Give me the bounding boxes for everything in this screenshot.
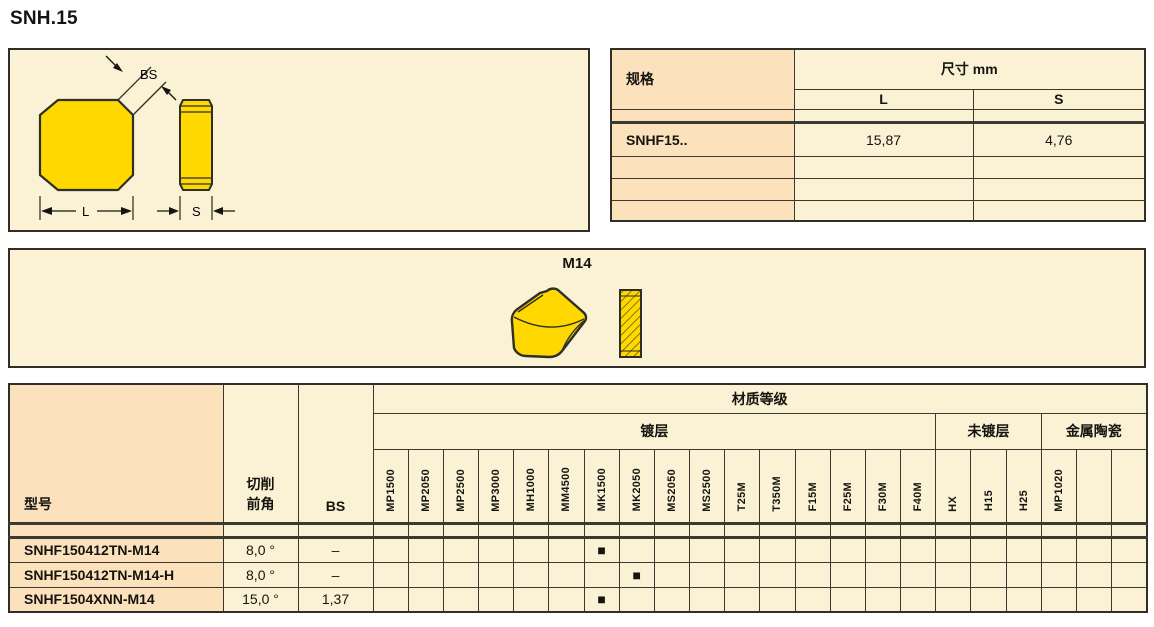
insert-drawing: BS L S <box>10 50 588 230</box>
grade-mark-cell <box>1006 587 1041 612</box>
grade-mark-cell <box>795 523 830 537</box>
grade-mark-cell <box>514 587 549 612</box>
table-row <box>611 178 1145 200</box>
model-cell: SNHF150412TN-M14 <box>9 537 223 562</box>
rake-angle-line2: 前角 <box>224 494 298 514</box>
grade-mark-cell <box>795 562 830 587</box>
spec-cell: SNHF15.. <box>611 122 794 156</box>
grade-column-header: HX <box>936 449 971 523</box>
chipbreaker-drawing <box>10 250 1144 366</box>
grade-column-label: F40M <box>912 482 924 511</box>
grade-mark-cell <box>443 523 478 537</box>
spec-cell <box>611 200 794 221</box>
bs-column-header: BS <box>298 384 373 523</box>
grade-column-header: H25 <box>1006 449 1041 523</box>
grade-mark-cell <box>619 523 654 537</box>
grade-mark-cell <box>408 537 443 562</box>
grade-column-header: F15M <box>795 449 830 523</box>
rake-angle-cell: 15,0 ° <box>223 587 298 612</box>
grade-column-header: H15 <box>971 449 1006 523</box>
grade-mark-cell <box>690 523 725 537</box>
grade-column-header: MP3000 <box>479 449 514 523</box>
table-row: SNHF15.. 15,87 4,76 <box>611 122 1145 156</box>
grade-column-header: MS2050 <box>654 449 689 523</box>
grade-column-label: MP2050 <box>420 469 432 512</box>
dimension-mm-header: 尺寸 mm <box>794 49 1145 89</box>
grade-mark-cell <box>654 523 689 537</box>
grade-column-label: F25M <box>842 482 854 511</box>
grade-column-label: MS2050 <box>666 469 678 512</box>
grade-mark-cell <box>936 523 971 537</box>
rake-angle-line1: 切削 <box>224 474 298 494</box>
grade-column-label: HX <box>947 496 959 512</box>
table-row: SNHF150412TN-M148,0 °–■ <box>9 537 1147 562</box>
grade-mark-cell: ■ <box>584 537 619 562</box>
model-cell <box>9 523 223 537</box>
grade-mark-cell <box>549 523 584 537</box>
grade-mark-cell <box>865 537 900 562</box>
grade-column-label: T350M <box>771 476 783 512</box>
grade-mark-cell: ■ <box>619 562 654 587</box>
grade-mark-cell <box>1076 537 1111 562</box>
rake-angle-cell: 8,0 ° <box>223 562 298 587</box>
col-header-S: S <box>973 89 1145 109</box>
subgroup-header-0: 镀层 <box>373 413 936 449</box>
grade-mark-cell <box>443 562 478 587</box>
table-row <box>611 109 1145 122</box>
grade-mark-cell <box>1076 587 1111 612</box>
grade-mark-cell <box>1076 562 1111 587</box>
grade-mark-cell <box>936 587 971 612</box>
grade-mark-cell <box>408 562 443 587</box>
rake-angle-cell: 8,0 ° <box>223 537 298 562</box>
grade-mark-cell <box>865 587 900 612</box>
grade-column-header: MP1020 <box>1041 449 1076 523</box>
grade-mark-cell <box>654 562 689 587</box>
grade-column-label: F15M <box>807 482 819 511</box>
grade-column-header <box>1112 449 1147 523</box>
grade-column-label: H25 <box>1018 490 1030 511</box>
grade-mark-cell <box>830 523 865 537</box>
model-column-header: 型号 <box>9 384 223 523</box>
grade-mark-cell <box>1006 537 1041 562</box>
grade-mark-cell <box>760 587 795 612</box>
bs-cell: – <box>298 537 373 562</box>
grade-mark-cell <box>549 562 584 587</box>
grade-mark-cell <box>795 587 830 612</box>
grade-mark-cell <box>479 523 514 537</box>
grade-mark-cell <box>795 537 830 562</box>
chipbreaker-panel: M14 <box>8 248 1146 368</box>
grade-column-header: MS2500 <box>690 449 725 523</box>
grade-column-label: MK1500 <box>596 468 608 511</box>
grade-mark-cell <box>971 537 1006 562</box>
grades-table: 型号切削前角BS材质等级镀层未镀层金属陶瓷MP1500MP2050MP2500M… <box>8 383 1148 613</box>
grade-column-label: MP3000 <box>490 469 502 512</box>
bs-cell: – <box>298 562 373 587</box>
grade-mark-cell <box>901 523 936 537</box>
material-grade-group-header: 材质等级 <box>373 384 1147 413</box>
table-row <box>611 156 1145 178</box>
grade-mark-cell <box>443 587 478 612</box>
grade-mark-cell <box>936 562 971 587</box>
s-cell <box>973 200 1145 221</box>
s-cell <box>973 156 1145 178</box>
grade-mark-cell <box>901 537 936 562</box>
grade-mark-cell <box>549 537 584 562</box>
l-cell <box>794 109 973 122</box>
spec-cell <box>611 156 794 178</box>
grade-mark-cell <box>760 537 795 562</box>
grade-column-label: MH1000 <box>525 468 537 511</box>
grade-mark-cell: ■ <box>584 587 619 612</box>
grade-mark-cell <box>901 587 936 612</box>
grade-mark-cell <box>865 562 900 587</box>
grade-mark-cell <box>760 523 795 537</box>
grade-mark-cell <box>549 587 584 612</box>
col-header-L: L <box>794 89 973 109</box>
s-cell <box>973 109 1145 122</box>
s-cell: 4,76 <box>973 122 1145 156</box>
grade-mark-cell <box>619 537 654 562</box>
grade-mark-cell <box>373 523 408 537</box>
grade-mark-cell <box>901 562 936 587</box>
table-row <box>611 200 1145 221</box>
rake-angle-cell <box>223 523 298 537</box>
grade-mark-cell <box>725 587 760 612</box>
subgroup-header-1: 未镀层 <box>936 413 1042 449</box>
bs-dim-label: BS <box>140 67 158 82</box>
grade-mark-cell <box>760 562 795 587</box>
grade-column-header: MH1000 <box>514 449 549 523</box>
grade-mark-cell <box>865 523 900 537</box>
grade-column-header: F40M <box>901 449 936 523</box>
grade-mark-cell <box>584 523 619 537</box>
page-title: SNH.15 <box>10 8 78 30</box>
grade-mark-cell <box>373 562 408 587</box>
model-cell: SNHF150412TN-M14-H <box>9 562 223 587</box>
grade-mark-cell <box>514 562 549 587</box>
grade-mark-cell <box>830 587 865 612</box>
grade-mark-cell <box>373 587 408 612</box>
s-dim-label: S <box>192 204 201 219</box>
grade-mark-cell <box>690 537 725 562</box>
grade-mark-cell <box>1041 537 1076 562</box>
grade-mark-cell <box>690 562 725 587</box>
grade-column-label: F30M <box>877 482 889 511</box>
grade-mark-cell <box>408 587 443 612</box>
insert-side-section <box>620 290 641 357</box>
grade-mark-cell <box>1076 523 1111 537</box>
grade-column-header: F25M <box>830 449 865 523</box>
grade-mark-cell <box>619 587 654 612</box>
table-row <box>9 523 1147 537</box>
model-cell: SNHF1504XNN-M14 <box>9 587 223 612</box>
grade-column-header: T25M <box>725 449 760 523</box>
grade-column-header: F30M <box>865 449 900 523</box>
grade-mark-cell <box>514 537 549 562</box>
grade-mark-cell <box>654 537 689 562</box>
l-cell: 15,87 <box>794 122 973 156</box>
grade-mark-cell <box>479 537 514 562</box>
grade-column-label: MK2050 <box>631 468 643 511</box>
table-row: SNHF150412TN-M14-H8,0 °–■ <box>9 562 1147 587</box>
rake-angle-column-header: 切削前角 <box>223 384 298 523</box>
grade-column-header: T350M <box>760 449 795 523</box>
grade-column-header: MP2050 <box>408 449 443 523</box>
grade-column-header <box>1076 449 1111 523</box>
l-cell <box>794 156 973 178</box>
grade-column-label: H15 <box>983 490 995 511</box>
grade-mark-cell <box>479 587 514 612</box>
l-dim-label: L <box>82 204 89 219</box>
grade-column-label: MS2500 <box>701 469 713 512</box>
grade-column-header: MP2500 <box>443 449 478 523</box>
dimension-table: 规格 尺寸 mm L S SNHF15.. 15,87 4,76 <box>610 48 1146 222</box>
grade-mark-cell <box>725 523 760 537</box>
grade-mark-cell <box>971 523 1006 537</box>
grade-mark-cell <box>1041 562 1076 587</box>
grade-mark-cell <box>443 537 478 562</box>
grade-mark-cell <box>830 562 865 587</box>
grade-mark-cell <box>1006 562 1041 587</box>
grade-mark-cell <box>971 587 1006 612</box>
grade-mark-cell <box>1112 537 1147 562</box>
bs-cell: 1,37 <box>298 587 373 612</box>
grade-mark-cell <box>584 562 619 587</box>
grade-mark-cell <box>1006 523 1041 537</box>
grade-mark-cell <box>479 562 514 587</box>
grade-mark-cell <box>1041 587 1076 612</box>
grade-column-label: T25M <box>736 482 748 511</box>
grade-mark-cell <box>514 523 549 537</box>
table-row: SNHF1504XNN-M1415,0 °1,37■ <box>9 587 1147 612</box>
grade-mark-cell <box>725 562 760 587</box>
grade-mark-cell <box>373 537 408 562</box>
grade-column-header: MK1500 <box>584 449 619 523</box>
spec-cell <box>611 178 794 200</box>
s-cell <box>973 178 1145 200</box>
grade-column-label: MM4500 <box>560 467 572 512</box>
grade-mark-cell <box>1112 562 1147 587</box>
grade-mark-cell <box>1041 523 1076 537</box>
grade-mark-cell <box>971 562 1006 587</box>
l-cell <box>794 200 973 221</box>
grade-column-header: MP1500 <box>373 449 408 523</box>
grade-mark-cell <box>936 537 971 562</box>
insert-top-view <box>40 100 133 190</box>
insert-side-view <box>180 100 212 190</box>
subgroup-header-2: 金属陶瓷 <box>1041 413 1147 449</box>
grade-column-label: MP1020 <box>1053 469 1065 512</box>
catalog-page: SNH.15 BS L <box>0 0 1154 627</box>
grade-column-header: MK2050 <box>619 449 654 523</box>
l-cell <box>794 178 973 200</box>
spec-cell <box>611 109 794 122</box>
grade-column-label: MP1500 <box>385 469 397 512</box>
grade-mark-cell <box>654 587 689 612</box>
grade-mark-cell <box>690 587 725 612</box>
grade-mark-cell <box>830 537 865 562</box>
grade-mark-cell <box>408 523 443 537</box>
grade-mark-cell <box>1112 523 1147 537</box>
insert-drawing-panel: BS L S <box>8 48 590 232</box>
grade-mark-cell <box>1112 587 1147 612</box>
spec-column-header: 规格 <box>611 49 794 109</box>
grade-column-label: MP2500 <box>455 469 467 512</box>
bs-cell <box>298 523 373 537</box>
grade-column-header: MM4500 <box>549 449 584 523</box>
grade-mark-cell <box>725 537 760 562</box>
